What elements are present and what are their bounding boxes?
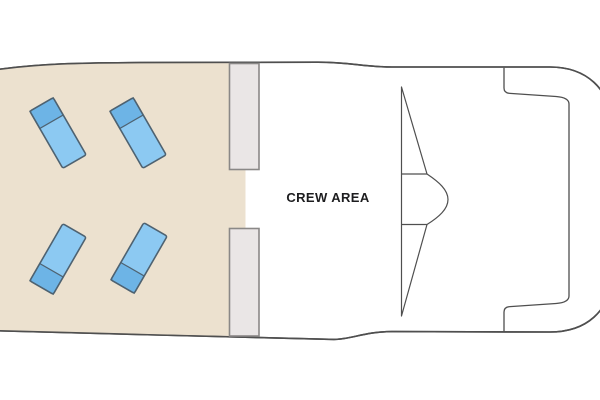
bulkhead-wall-bottom [230, 229, 260, 337]
deck-plan-canvas: CREW AREA [0, 0, 600, 400]
deck-plan-drawing: CREW AREA [0, 0, 600, 400]
crew-area-label: CREW AREA [286, 190, 369, 205]
bulkhead-wall-top [230, 64, 260, 170]
